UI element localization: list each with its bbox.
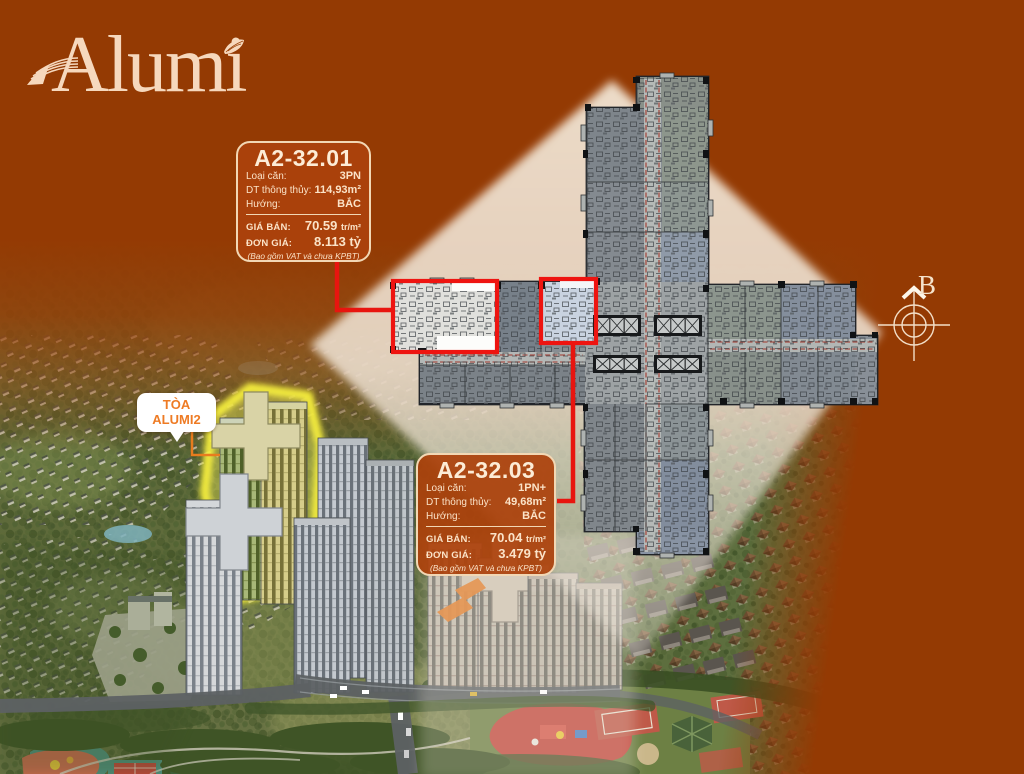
svg-text:Alumi: Alumi bbox=[51, 21, 246, 109]
svg-text:B: B bbox=[918, 270, 936, 300]
